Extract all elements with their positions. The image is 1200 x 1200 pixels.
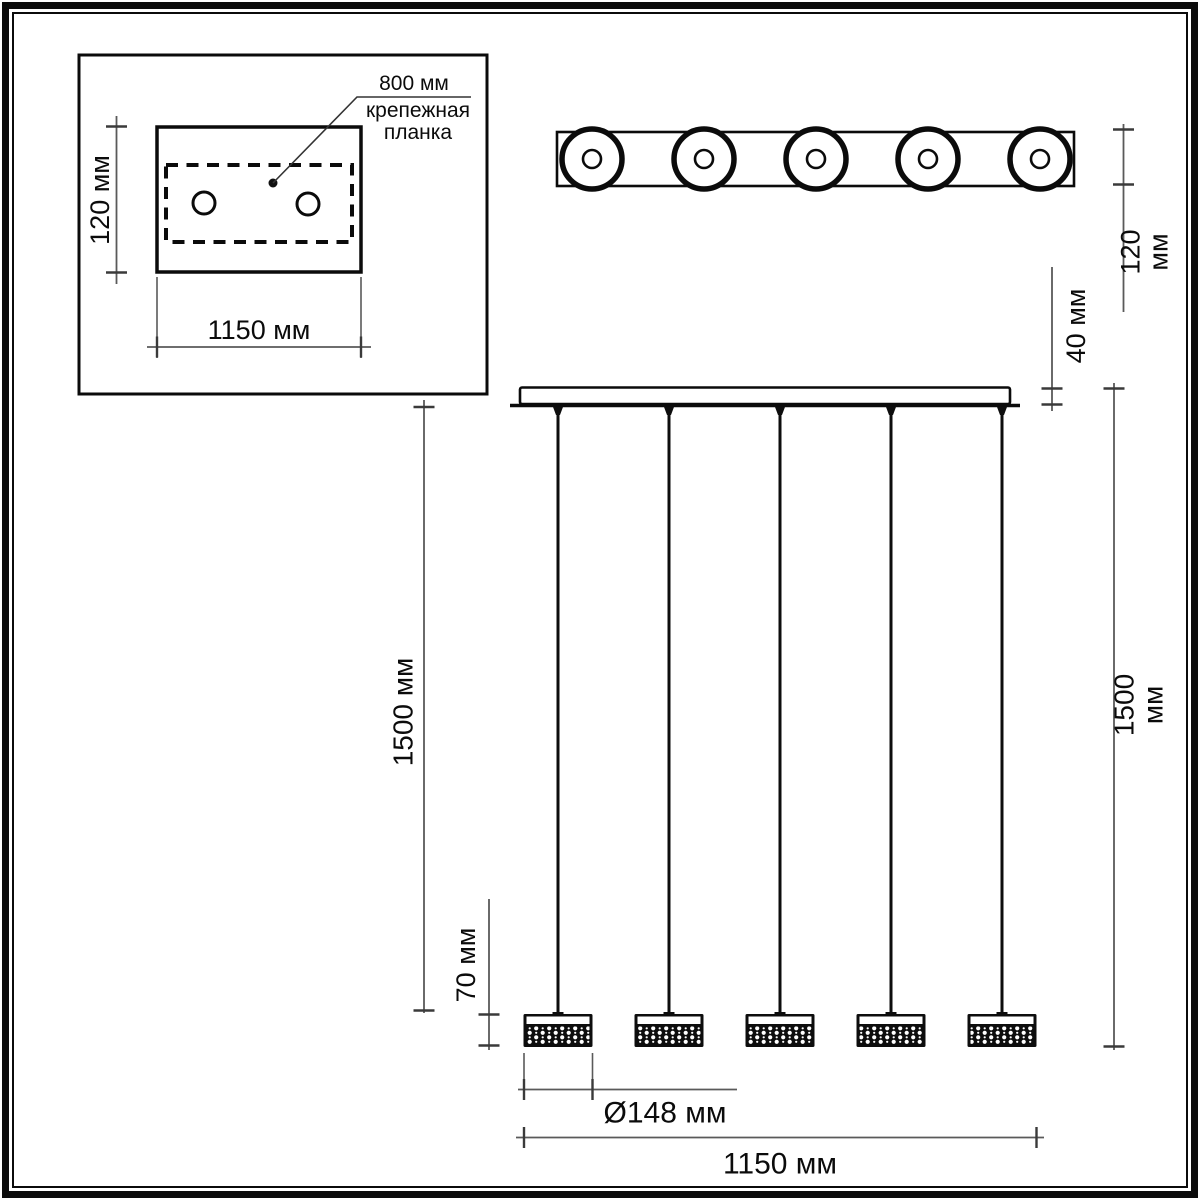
total-width-label: 1150 мм bbox=[723, 1148, 837, 1180]
inset-height-label: 120 мм bbox=[86, 155, 114, 245]
cable-top-flares bbox=[553, 407, 1007, 415]
shade bbox=[968, 1012, 1037, 1047]
shade bbox=[524, 1012, 593, 1047]
mount-plate-length-label: 800 мм bbox=[379, 73, 449, 95]
canopy-body bbox=[520, 388, 1010, 405]
mount-hole-right bbox=[297, 193, 319, 215]
shade bbox=[857, 1012, 926, 1047]
top-view bbox=[557, 124, 1134, 312]
canopy-height-label: 40 мм bbox=[1062, 289, 1090, 364]
mount-plate-name-label: крепежная планка bbox=[366, 100, 470, 144]
shade bbox=[635, 1012, 704, 1047]
total-width-dimension bbox=[516, 1127, 1044, 1148]
topview-height-label: 120 мм bbox=[1117, 225, 1174, 280]
shade-height-label: 70 мм bbox=[452, 928, 480, 1003]
mount-hole-left bbox=[193, 192, 215, 214]
cable-drop-right-label: 1500 мм bbox=[1110, 674, 1169, 736]
shade-diameter-label: Ø148 мм bbox=[604, 1097, 727, 1129]
topview-height-dimension bbox=[1113, 124, 1134, 312]
shade-diameter-dimension bbox=[518, 1053, 737, 1100]
cable-drop-left-label: 1500 мм bbox=[388, 658, 417, 767]
front-view bbox=[414, 267, 1125, 1148]
suspension-cables bbox=[558, 407, 1002, 1016]
shade bbox=[746, 1012, 815, 1047]
shade-height-dimension bbox=[479, 899, 500, 1050]
shades bbox=[524, 1012, 1037, 1047]
inset-width-label: 1150 мм bbox=[208, 316, 311, 344]
technical-drawing-page: 800 мм крепежная планка 120 мм 1150 мм 1… bbox=[0, 0, 1200, 1200]
pendant-light-drawing bbox=[0, 0, 1200, 1200]
canopy-plan-rect bbox=[157, 127, 361, 272]
canopy-height-dimension bbox=[1042, 267, 1063, 411]
